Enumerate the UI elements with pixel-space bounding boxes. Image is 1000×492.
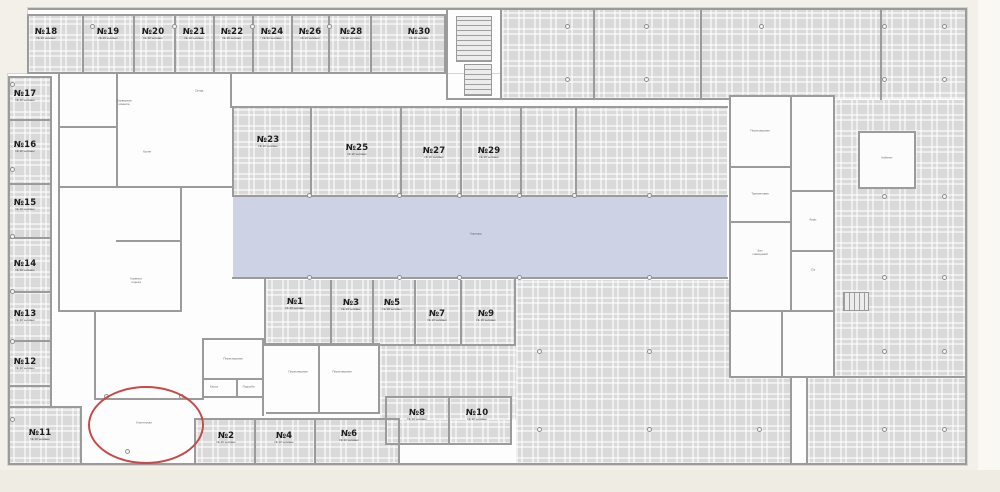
small-room-label: Склад (195, 89, 204, 92)
room-number: №30 (396, 28, 441, 37)
room-label: №6№ 10 человек (326, 430, 371, 446)
room-label: №19№ 10 человек (85, 28, 130, 44)
column-dot (10, 289, 15, 294)
column-dot (757, 427, 762, 432)
room-capacity: № 10 человек (16, 269, 35, 272)
wall-segment (792, 190, 835, 192)
wall-segment (790, 95, 792, 312)
wall-segment (833, 98, 835, 378)
room-capacity: № 10 человек (259, 145, 278, 148)
wall-segment (116, 240, 182, 242)
room-label: №25№ 10 человек (334, 144, 379, 160)
column-dot (942, 275, 947, 280)
room-label: №5№ 10 человек (369, 299, 414, 315)
room-capacity: № 10 человек (408, 418, 427, 421)
room-label: №30№ 10 человек (396, 28, 441, 44)
wall-segment (575, 108, 577, 197)
room-number: №12 (2, 358, 47, 367)
room-label: №22№ 10 человек (209, 28, 254, 44)
room-capacity: № 10 человек (16, 367, 35, 370)
wall-segment (806, 376, 967, 378)
room-number: №8 (394, 409, 439, 418)
room-label: №10№ 10 человек (454, 409, 499, 425)
room-number: №11 (17, 429, 62, 438)
room-number: №26 (287, 28, 332, 37)
room-capacity: № 10 человек (342, 37, 361, 40)
room-capacity: № 10 человек (144, 37, 163, 40)
wall-segment (58, 126, 118, 128)
room-number: №23 (245, 136, 290, 145)
room-capacity: № 10 человек (99, 37, 118, 40)
room-capacity: № 10 человек (410, 37, 429, 40)
room-number: №1 (272, 298, 317, 307)
room-capacity: № 10 человек (425, 156, 444, 159)
column-dot (882, 194, 887, 199)
floor-plan-canvas: №18№ 10 человек№19№ 10 человек№20№ 10 че… (0, 0, 1000, 492)
wall-segment (264, 278, 266, 346)
room-capacity: № 10 человек (223, 37, 242, 40)
small-room-label: Касса (210, 385, 218, 388)
wall-segment (8, 119, 52, 121)
room-label: №15№ 10 человек (2, 199, 47, 215)
wall-segment (792, 250, 835, 252)
room-label: №13№ 10 человек (2, 310, 47, 326)
wall-segment (202, 338, 264, 340)
column-dot (397, 193, 402, 198)
room-label: №27№ 10 человек (411, 147, 456, 163)
room-label: №7№ 10 человек (414, 310, 459, 326)
room-label: №18№ 10 человек (23, 28, 68, 44)
wall-segment (82, 16, 84, 72)
room-label: №3№ 10 человек (328, 299, 373, 315)
room-label: №12№ 10 человек (2, 358, 47, 374)
column-dot (882, 427, 887, 432)
room-number: №19 (85, 28, 130, 37)
wall-segment (460, 280, 462, 344)
highlight-ellipse (88, 386, 204, 464)
wall-segment (500, 98, 731, 100)
column-dot (942, 24, 947, 29)
room-number: №14 (2, 260, 47, 269)
wall-segment (266, 343, 380, 345)
column-dot (882, 24, 887, 29)
small-room-label: Зал совещаний (752, 250, 767, 257)
column-dot (882, 349, 887, 354)
column-dot (457, 193, 462, 198)
room-capacity: № 10 человек (31, 438, 50, 441)
room-number: №6 (326, 430, 371, 439)
column-dot (882, 275, 887, 280)
wall-segment (806, 376, 808, 465)
small-room-label: Подсобн. (243, 385, 256, 388)
small-room-label: Кухня (143, 150, 151, 153)
room-label: №8№ 10 человек (394, 409, 439, 425)
small-room-label: Серверная комната (116, 100, 131, 107)
column-dot (10, 339, 15, 344)
stairs-icon (464, 64, 492, 96)
open-office-zone (516, 280, 729, 464)
column-dot (759, 24, 764, 29)
stairs-icon (843, 292, 869, 311)
small-room-label: Кабинет (881, 156, 892, 159)
wall-segment (50, 76, 52, 408)
room-capacity: № 10 человек (480, 156, 499, 159)
room-number: №16 (2, 141, 47, 150)
room-number: №18 (23, 28, 68, 37)
room-number: №29 (466, 147, 511, 156)
wall-segment (880, 10, 882, 100)
wall-segment (781, 310, 783, 378)
wall-segment (700, 10, 702, 100)
right-margin (978, 0, 1000, 492)
room-capacity: № 10 человек (468, 418, 487, 421)
small-room-label: Тренинговая (751, 192, 768, 195)
corridor-area (233, 197, 727, 277)
wall-segment (593, 10, 595, 100)
wall-segment (314, 420, 316, 465)
room-number: №28 (328, 28, 373, 37)
column-dot (647, 427, 652, 432)
room-capacity: № 10 человек (428, 319, 447, 322)
small-room-label: Коридор (470, 232, 482, 235)
room-number: №27 (411, 147, 456, 156)
room-number: №25 (334, 144, 379, 153)
wall-segment (8, 385, 52, 387)
wall-segment (58, 72, 234, 74)
column-dot (942, 427, 947, 432)
wall-segment (80, 406, 82, 465)
small-room-label: Переговорная (750, 129, 769, 132)
room-capacity: № 10 человек (37, 37, 56, 40)
column-dot (647, 193, 652, 198)
wall-segment (58, 72, 60, 312)
wall-segment (446, 98, 504, 100)
column-dot (644, 24, 649, 29)
wall-segment (232, 106, 234, 197)
wall-segment (400, 108, 402, 197)
wall-segment (58, 310, 182, 312)
wall-segment (58, 186, 232, 188)
column-dot (942, 77, 947, 82)
wall-segment (378, 343, 380, 414)
room-number: №3 (328, 299, 373, 308)
column-dot (565, 24, 570, 29)
wall-segment (370, 16, 372, 72)
wall-segment (202, 338, 204, 400)
small-room-label: Лифт (809, 218, 816, 221)
room-capacity: № 10 человек (286, 307, 305, 310)
wall-segment (500, 10, 502, 100)
small-room-label: С/у (811, 268, 815, 271)
column-dot (10, 82, 15, 87)
wall-segment (194, 418, 400, 420)
wall-segment (28, 8, 967, 10)
wall-segment (446, 10, 448, 100)
wall-segment (291, 16, 293, 72)
wall-segment (460, 108, 462, 197)
small-room-label: Переговорная (288, 370, 307, 373)
room-capacity: № 10 человек (301, 37, 320, 40)
floor-plan: №18№ 10 человек№19№ 10 человек№20№ 10 че… (0, 0, 1000, 492)
room-capacity: № 10 человек (340, 439, 359, 442)
room-capacity: № 10 человек (342, 308, 361, 311)
column-dot (307, 193, 312, 198)
room-number: №2 (203, 432, 248, 441)
room-label: №28№ 10 человек (328, 28, 373, 44)
wall-segment (448, 396, 450, 445)
room-number: №15 (2, 199, 47, 208)
room-capacity: № 10 человек (16, 208, 35, 211)
wall-segment (965, 8, 967, 465)
column-dot (457, 275, 462, 280)
room-label: №16№ 10 человек (2, 141, 47, 157)
small-room-label: Комната отдыха (130, 278, 142, 285)
room-capacity: № 10 человек (348, 153, 367, 156)
wall-segment (266, 412, 380, 414)
wall-segment (790, 376, 792, 465)
wall-segment (8, 76, 52, 78)
wall-segment (27, 14, 29, 74)
room-label: №23№ 10 человек (245, 136, 290, 152)
column-dot (572, 193, 577, 198)
wall-segment (232, 106, 728, 108)
column-dot (397, 275, 402, 280)
room-number: №20 (130, 28, 175, 37)
column-dot (647, 275, 652, 280)
wall-segment (520, 108, 522, 197)
wall-segment (116, 74, 118, 188)
wall-segment (318, 343, 320, 414)
column-dot (647, 349, 652, 354)
room-label: №9№ 10 человек (463, 310, 508, 326)
open-office-zone (729, 378, 790, 464)
wall-segment (729, 166, 791, 168)
room-capacity: № 10 человек (217, 441, 236, 444)
open-office-zone (808, 378, 965, 464)
column-dot (942, 349, 947, 354)
room-capacity: № 10 человек (263, 37, 282, 40)
wall-segment (202, 396, 264, 398)
room-label: №11№ 10 человек (17, 429, 62, 445)
room-label: №20№ 10 человек (130, 28, 175, 44)
room-capacity: № 10 человек (185, 37, 204, 40)
room-number: №7 (414, 310, 459, 319)
wall-segment (385, 443, 512, 445)
wall-segment (510, 396, 512, 445)
room-number: №4 (261, 432, 306, 441)
room-label: №4№ 10 человек (261, 432, 306, 448)
room-label: №26№ 10 человек (287, 28, 332, 44)
column-dot (565, 77, 570, 82)
column-dot (10, 417, 15, 422)
room-capacity: № 10 человек (16, 319, 35, 322)
room-outline (858, 131, 916, 189)
column-dot (10, 234, 15, 239)
wall-segment (262, 338, 264, 416)
column-dot (307, 275, 312, 280)
room-capacity: № 10 человек (477, 319, 496, 322)
column-dot (942, 194, 947, 199)
wall-segment (133, 16, 135, 72)
wall-segment (94, 310, 96, 400)
room-label: №1№ 10 человек (272, 298, 317, 314)
room-capacity: № 10 человек (16, 99, 35, 102)
column-dot (537, 349, 542, 354)
room-number: №22 (209, 28, 254, 37)
room-number: №13 (2, 310, 47, 319)
bottom-margin (0, 470, 1000, 492)
wall-segment (8, 406, 82, 408)
room-label: №14№ 10 человек (2, 260, 47, 276)
wall-segment (230, 72, 232, 108)
room-label: №2№ 10 человек (203, 432, 248, 448)
small-room-label: Переговорная (223, 357, 242, 360)
room-capacity: № 10 человек (16, 150, 35, 153)
room-number: №17 (2, 90, 47, 99)
wall-segment (213, 16, 215, 72)
wall-segment (202, 378, 264, 380)
wall-segment (28, 14, 446, 16)
room-number: №10 (454, 409, 499, 418)
wall-segment (385, 396, 387, 445)
room-capacity: № 10 человек (383, 308, 402, 311)
stairs-icon (456, 16, 492, 62)
small-room-label: Переговорная (332, 370, 351, 373)
open-office-zone (502, 10, 965, 99)
column-dot (537, 427, 542, 432)
wall-segment (514, 278, 516, 346)
room-number: №5 (369, 299, 414, 308)
column-dot (517, 193, 522, 198)
wall-segment (729, 221, 791, 223)
room-capacity: № 10 человек (275, 441, 294, 444)
room-number: №9 (463, 310, 508, 319)
wall-segment (310, 108, 312, 197)
wall-segment (254, 420, 256, 465)
wall-segment (180, 186, 182, 312)
column-dot (882, 77, 887, 82)
wall-segment (236, 378, 238, 398)
column-dot (517, 275, 522, 280)
column-dot (644, 77, 649, 82)
room-label: №17№ 10 человек (2, 90, 47, 106)
column-dot (10, 167, 15, 172)
room-label: №29№ 10 человек (466, 147, 511, 163)
wall-segment (8, 183, 52, 185)
